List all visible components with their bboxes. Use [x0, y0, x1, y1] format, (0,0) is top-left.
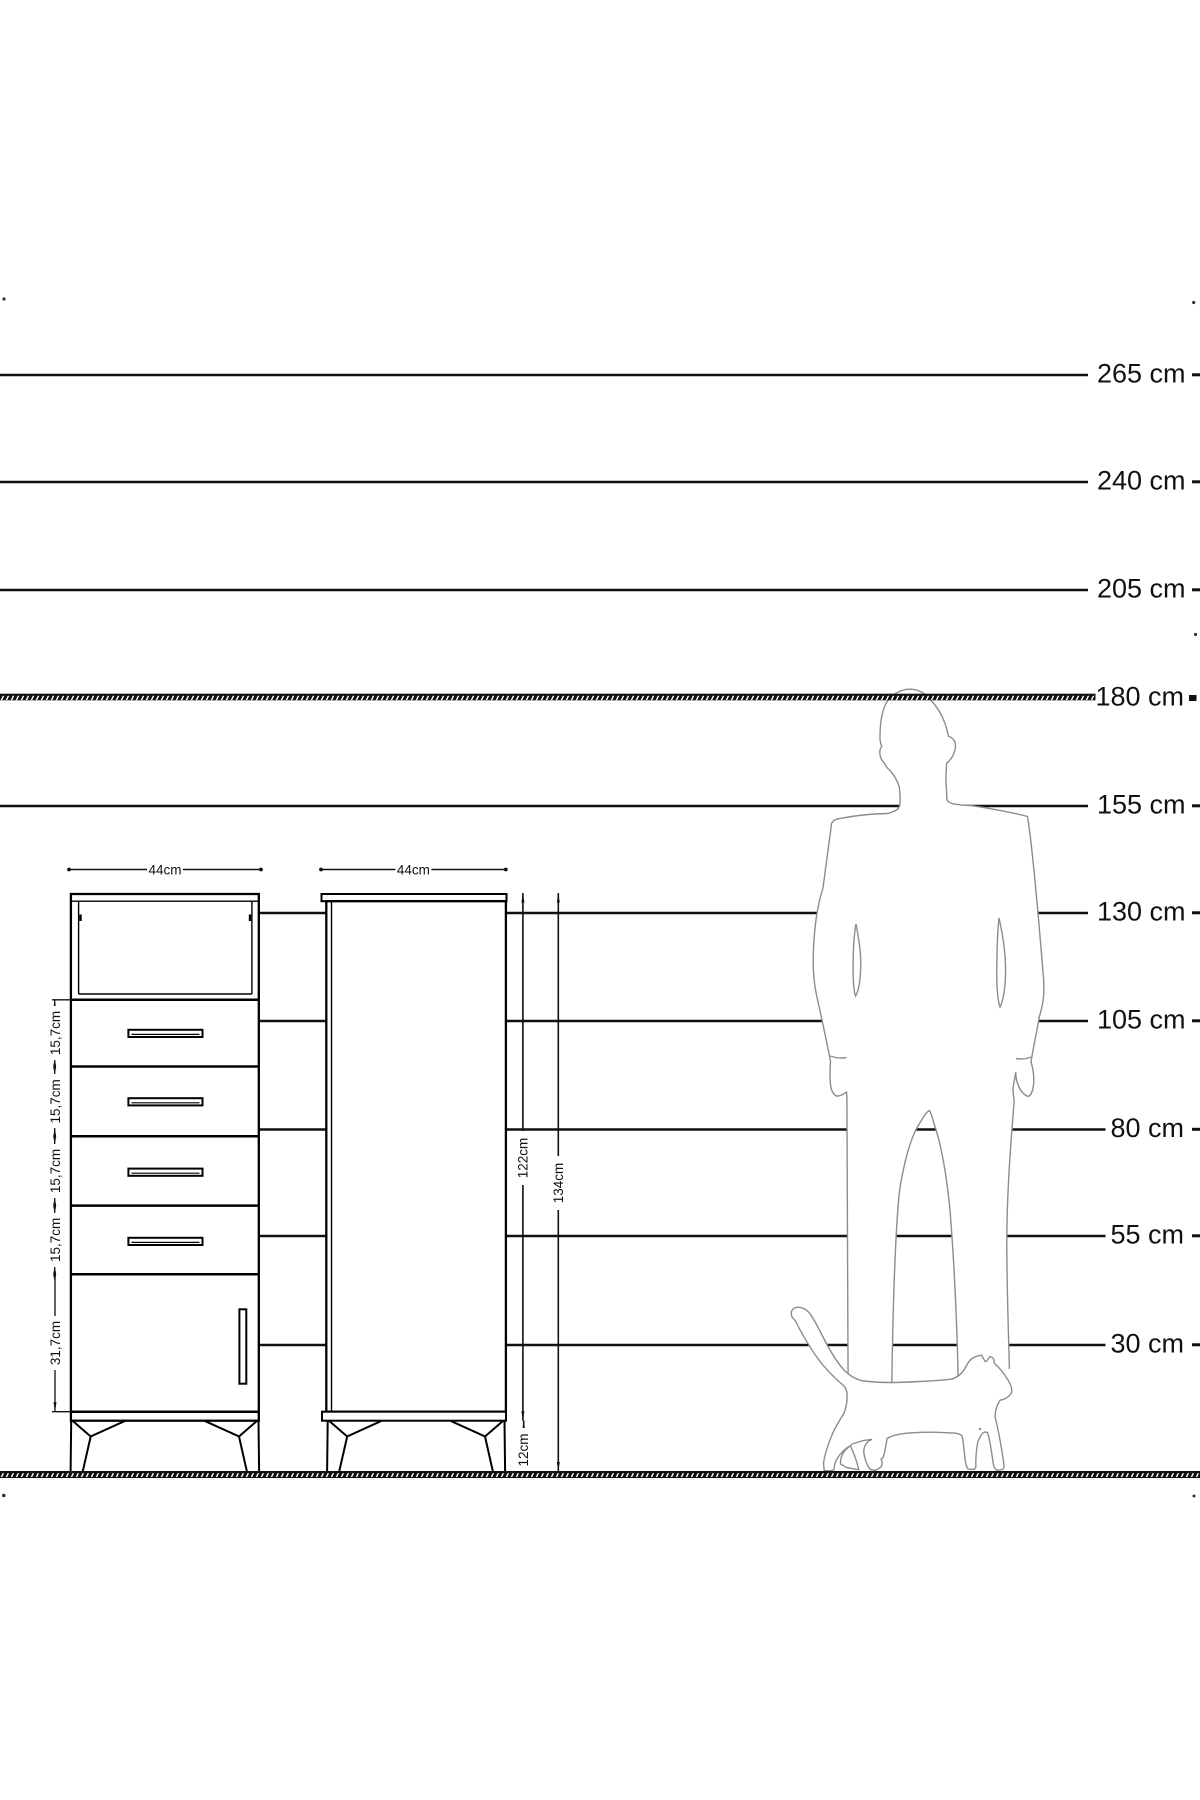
svg-text:122cm: 122cm: [515, 1138, 530, 1179]
svg-text:105 cm: 105 cm: [1097, 1005, 1186, 1035]
svg-text:155 cm: 155 cm: [1097, 790, 1186, 820]
svg-text:15,7cm: 15,7cm: [48, 1218, 63, 1262]
svg-text:30 cm: 30 cm: [1111, 1329, 1185, 1359]
svg-text:15,7cm: 15,7cm: [48, 1011, 63, 1055]
svg-text:12cm: 12cm: [516, 1433, 531, 1466]
svg-text:15,7cm: 15,7cm: [48, 1079, 63, 1123]
svg-text:55 cm: 55 cm: [1111, 1220, 1185, 1250]
svg-text:80 cm: 80 cm: [1111, 1113, 1185, 1143]
svg-text:15,7cm: 15,7cm: [48, 1149, 63, 1193]
svg-text:180 cm: 180 cm: [1096, 682, 1185, 712]
svg-text:31,7cm: 31,7cm: [48, 1321, 63, 1365]
svg-text:134cm: 134cm: [551, 1163, 566, 1204]
svg-text:44cm: 44cm: [148, 863, 181, 878]
svg-text:205 cm: 205 cm: [1097, 574, 1186, 604]
svg-text:240 cm: 240 cm: [1097, 466, 1186, 496]
svg-text:44cm: 44cm: [397, 863, 430, 878]
svg-text:265 cm: 265 cm: [1097, 359, 1186, 389]
svg-text:130 cm: 130 cm: [1097, 897, 1186, 927]
